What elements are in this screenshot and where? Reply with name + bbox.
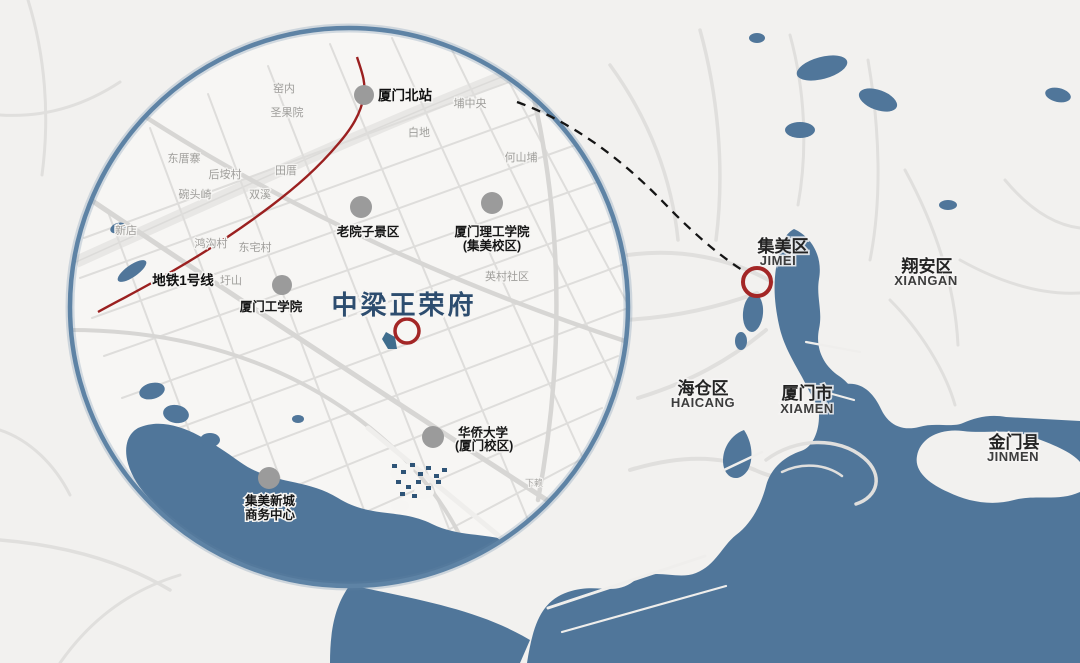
map-canvas: 窑内 圣果院 埔中央 白地 何山埔 东厝寨 后垵村 田厝 碗头崎 双溪 新店 鸿… [0, 0, 1080, 663]
poi-dot-icon [272, 275, 292, 295]
village-label: 窑内 [273, 81, 295, 95]
district-label-jinmen-en: JINMEN [987, 449, 1039, 464]
district-label-jimei-en: JIMEI [760, 253, 796, 268]
village-label: 东厝寨 [168, 151, 201, 165]
poi-label-jimei-cbd-1: 集美新城 [244, 493, 296, 508]
village-label: 碗头崎 [179, 187, 212, 201]
poi-label-gongxueyuan: 厦门工学院 [240, 299, 303, 314]
village-label: 后垵村 [209, 167, 242, 181]
poi-dot-icon [422, 426, 444, 448]
village-label: 圣果院 [271, 105, 304, 119]
poi-label-ligong-2: (集美校区) [463, 238, 521, 253]
poi-dot-icon [258, 467, 280, 489]
village-label: 何山埔 [505, 151, 538, 164]
village-label: 白地 [408, 125, 430, 139]
village-label: 鸿沟村 [195, 236, 228, 250]
poi-label-ligong-1: 厦门理工学院 [454, 224, 530, 239]
village-label: 双溪 [249, 188, 271, 201]
poi-dot-icon [354, 85, 374, 105]
poi-label-xiamen-north-station: 厦门北站 [378, 87, 432, 103]
district-label-xiangan-en: XIANGAN [894, 273, 957, 288]
poi-label-laoyuanzi: 老院子景区 [336, 224, 400, 239]
village-label: 圩山 [220, 274, 242, 287]
location-map: 窑内 圣果院 埔中央 白地 何山埔 东厝寨 后垵村 田厝 碗头崎 双溪 新店 鸿… [0, 0, 1080, 663]
village-label: 埔中央 [454, 97, 487, 110]
district-label-xiamen-en: XIAMEN [780, 401, 834, 416]
project-title: 中梁正荣府 [331, 290, 476, 320]
district-label-xiamen: 厦门市 [782, 383, 833, 403]
poi-dot-icon [481, 192, 503, 214]
district-label-haicang-en: HAICANG [671, 395, 735, 410]
poi-dot-icon [350, 196, 372, 218]
poi-label-jimei-cbd-2: 商务中心 [245, 507, 296, 522]
village-label: 英村社区 [485, 269, 529, 283]
village-label: 田厝 [275, 164, 297, 177]
village-label: 新店 [115, 223, 137, 237]
poi-label-huaqiao-1: 华侨大学 [458, 425, 509, 440]
metro-line-label: 地铁1号线 [152, 272, 214, 288]
village-label: 下赖 [525, 478, 543, 488]
poi-label-huaqiao-2: (厦门校区) [455, 438, 513, 453]
village-label: 东宅村 [239, 240, 272, 254]
